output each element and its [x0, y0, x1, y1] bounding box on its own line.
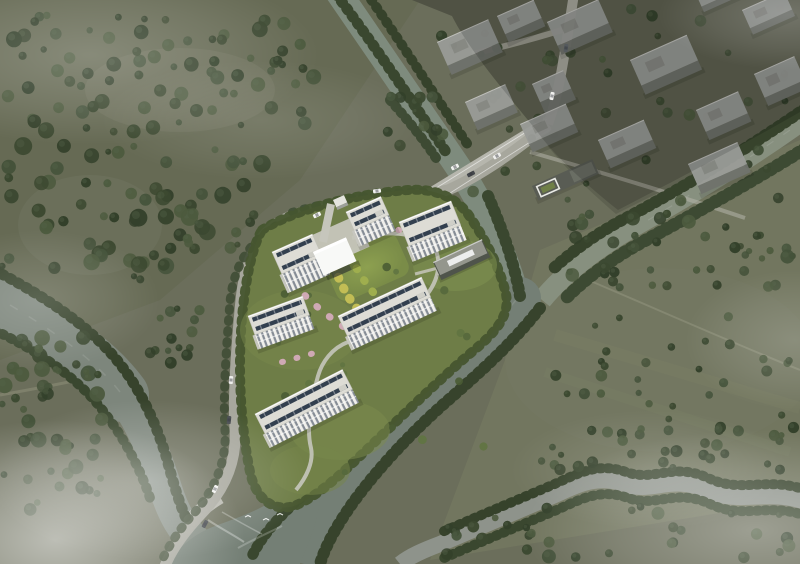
tree-highlight — [226, 243, 231, 248]
tree-highlight — [146, 349, 151, 354]
tree-highlight — [609, 278, 614, 283]
tree-highlight — [445, 525, 449, 529]
tree-highlight — [110, 214, 115, 219]
tree-highlight — [714, 282, 718, 286]
aerial-masterplan-render — [0, 0, 800, 564]
tree-highlight — [598, 390, 602, 394]
tree-highlight — [603, 348, 607, 352]
tree-highlight — [167, 244, 172, 249]
tree-highlight — [191, 316, 195, 320]
tree-highlight — [442, 550, 447, 555]
tree-highlight — [669, 344, 672, 347]
tree-highlight — [611, 268, 616, 273]
tree-highlight — [186, 201, 191, 206]
car-windshield — [564, 46, 568, 49]
tree-highlight — [176, 345, 179, 348]
tree-highlight — [702, 233, 706, 237]
tree-highlight — [104, 180, 108, 184]
tree-highlight — [569, 221, 574, 226]
tree-highlight — [754, 233, 758, 237]
tree-highlight — [599, 359, 602, 362]
tree-highlight — [648, 267, 651, 270]
garden-shrub — [440, 286, 448, 294]
tree-highlight — [437, 32, 442, 37]
render-canvas — [0, 0, 800, 564]
tree-highlight — [113, 148, 119, 154]
tree-highlight — [168, 335, 173, 340]
tree-highlight — [642, 359, 646, 363]
tree-highlight — [416, 93, 421, 98]
tree-highlight — [196, 306, 201, 311]
tree-highlight — [631, 244, 635, 248]
tree-highlight — [760, 256, 763, 259]
garden-shrub — [479, 442, 487, 450]
garden-shrub — [389, 424, 396, 431]
tree-highlight — [742, 252, 745, 255]
tree-highlight — [684, 217, 690, 223]
tree-highlight — [160, 210, 167, 217]
garden-shrub — [342, 469, 348, 475]
tree-blob — [165, 348, 171, 354]
tree-highlight — [436, 126, 439, 129]
tree-highlight — [189, 210, 194, 215]
tree-highlight — [552, 371, 557, 376]
tree-highlight — [158, 316, 161, 319]
tree-highlight — [783, 245, 787, 249]
tree-highlight — [567, 270, 573, 276]
tree-highlight — [132, 211, 140, 219]
tree-highlight — [12, 395, 16, 399]
garden-shrub — [340, 362, 345, 367]
tree-highlight — [21, 407, 24, 410]
tree-highlight — [617, 315, 620, 318]
tree-highlight — [602, 363, 606, 367]
garden-shrub — [463, 333, 471, 341]
tree-highlight — [601, 264, 606, 269]
tree-highlight — [6, 174, 10, 178]
tree-highlight — [740, 267, 745, 272]
tree-highlight — [157, 192, 164, 199]
tree-highlight — [235, 242, 238, 245]
tree-highlight — [91, 388, 98, 395]
tree-highlight — [650, 282, 653, 285]
tree-highlight — [679, 198, 683, 202]
tree-highlight — [632, 233, 635, 236]
tree-highlight — [565, 197, 568, 200]
tree-highlight — [731, 243, 736, 248]
tree-highlight — [176, 206, 182, 212]
tree-highlight — [151, 184, 157, 190]
tree-highlight — [141, 195, 146, 200]
tree-highlight — [493, 515, 496, 518]
tree-highlight — [250, 211, 254, 215]
tree-highlight — [6, 191, 12, 197]
tree-highlight — [33, 205, 39, 211]
tree-highlight — [195, 221, 198, 224]
tree-highlight — [586, 211, 590, 215]
tree-highlight — [565, 391, 568, 394]
tree-highlight — [420, 122, 425, 127]
car — [229, 376, 234, 384]
tree-highlight — [106, 150, 109, 153]
tree-highlight — [77, 200, 82, 205]
tree-highlight — [789, 423, 794, 428]
tree-highlight — [504, 522, 508, 526]
tree-highlight — [216, 189, 224, 197]
tree-highlight — [774, 194, 779, 199]
tree-highlight — [166, 348, 169, 351]
tree-highlight — [127, 189, 132, 194]
tree-highlight — [36, 178, 43, 185]
tree-highlight — [580, 214, 583, 217]
tree-highlight — [469, 522, 474, 527]
tree-highlight — [183, 351, 188, 356]
tree-highlight — [428, 93, 433, 98]
tree-highlight — [664, 211, 668, 215]
tree-highlight — [469, 187, 474, 192]
tree-highlight — [593, 323, 596, 326]
tree-highlight — [779, 413, 782, 416]
tree-highlight — [764, 166, 768, 170]
tree-highlight — [670, 404, 673, 407]
garden-shrub — [382, 263, 391, 272]
garden-shrub — [418, 435, 427, 444]
tree-highlight — [754, 146, 759, 151]
car-windshield — [375, 189, 378, 193]
tree-highlight — [60, 217, 65, 222]
tree-highlight — [166, 308, 171, 313]
tree-highlight — [653, 239, 657, 243]
tree-highlight — [571, 233, 577, 239]
tree-highlight — [708, 266, 712, 270]
tree-highlight — [478, 534, 484, 540]
tree-highlight — [175, 306, 178, 309]
tree-highlight — [187, 345, 190, 348]
tree-highlight — [86, 150, 93, 157]
tree-highlight — [52, 163, 58, 169]
tree-highlight — [597, 371, 602, 376]
tree-highlight — [656, 214, 662, 220]
fog-bottom-left-2 — [0, 400, 310, 560]
tree-highlight — [635, 377, 638, 380]
tree-highlight — [636, 391, 639, 394]
tree-highlight — [232, 229, 237, 234]
tree-highlight — [247, 219, 251, 223]
tree-highlight — [150, 251, 155, 256]
tree-highlight — [646, 401, 649, 404]
tree-highlight — [175, 230, 181, 236]
tree-highlight — [617, 284, 621, 288]
tree-highlight — [95, 372, 98, 375]
tree-highlight — [198, 190, 203, 195]
garden-shrub — [455, 377, 463, 385]
tree-highlight — [3, 162, 9, 168]
tree-highlight — [239, 180, 245, 186]
tree-highlight — [16, 369, 23, 376]
tree-highlight — [502, 168, 506, 172]
tree-highlight — [584, 237, 587, 240]
garden-shrub — [393, 269, 399, 275]
tree-highlight — [609, 238, 614, 243]
tree-highlight — [782, 251, 788, 257]
tree-highlight — [38, 381, 44, 387]
tree-highlight — [84, 370, 87, 373]
car-windshield — [229, 378, 232, 381]
tree-highlight — [767, 248, 770, 251]
fog-bottom-right-2 — [510, 410, 790, 530]
tree-highlight — [747, 249, 750, 252]
tree-highlight — [723, 224, 726, 227]
tree-highlight — [166, 358, 171, 363]
tree-highlight — [453, 532, 458, 537]
tree-highlight — [507, 126, 510, 129]
tree-highlight — [82, 179, 87, 184]
tree-highlight — [580, 390, 585, 395]
fog-top-left-2 — [100, 60, 420, 180]
tree-highlight — [160, 261, 165, 266]
tree-highlight — [41, 223, 47, 229]
tree-highlight — [101, 213, 105, 217]
tree-highlight — [664, 282, 668, 286]
tree-highlight — [694, 267, 697, 270]
tree-highlight — [628, 213, 634, 219]
tree-highlight — [706, 392, 709, 395]
tree-highlight — [85, 375, 88, 378]
tree-highlight — [184, 235, 188, 239]
tree-highlight — [188, 328, 193, 333]
tree-highlight — [523, 546, 528, 551]
tree-highlight — [533, 163, 537, 167]
